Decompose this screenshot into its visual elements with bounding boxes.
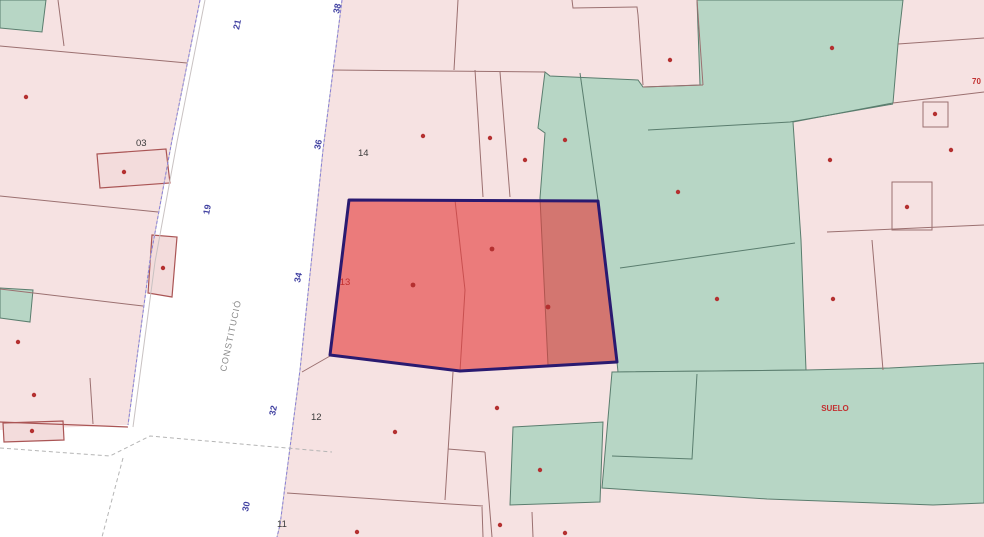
cadastral-map[interactable]: 13 CONSTITUCIÓ 21 19 38 36 34 32 30 03 1… xyxy=(0,0,984,537)
highlighted-parcel-label: 13 xyxy=(340,277,351,288)
highlighted-parcel[interactable]: 13 xyxy=(330,200,617,371)
parcel-marker-dot xyxy=(411,283,416,288)
west-green-parcel-top[interactable] xyxy=(0,0,46,32)
street-number-19: 19 xyxy=(201,204,213,216)
west-block[interactable] xyxy=(0,0,200,442)
parcel-marker-dot xyxy=(490,247,495,252)
street-number-36: 36 xyxy=(312,139,324,151)
parcel-label-03: 03 xyxy=(136,138,147,149)
edge-parcel-label: 70 xyxy=(972,77,981,86)
street-number-21: 21 xyxy=(231,19,243,31)
street-number-34: 34 xyxy=(292,272,304,284)
green-zone-label: SUELO xyxy=(821,404,849,413)
parcel-label-14: 14 xyxy=(358,148,369,159)
parcel-label-12: 12 xyxy=(311,412,322,423)
street-number-38: 38 xyxy=(331,3,343,15)
highlighted-parcel-polygon[interactable] xyxy=(330,200,617,371)
parcel-marker-dot xyxy=(546,305,551,310)
green-zone-bottom[interactable] xyxy=(602,363,984,505)
street-name-label: CONSTITUCIÓ xyxy=(218,299,243,372)
west-block-parcels[interactable] xyxy=(0,0,200,430)
street-number-32: 32 xyxy=(267,405,279,417)
street-number-30: 30 xyxy=(240,501,252,513)
green-parcel-bottom-mid[interactable] xyxy=(510,422,603,505)
building-outline xyxy=(97,149,170,188)
boundary-dashed-line xyxy=(102,458,123,537)
parcel-label-11: 11 xyxy=(277,519,287,530)
west-green-parcel-mid[interactable] xyxy=(0,288,33,322)
